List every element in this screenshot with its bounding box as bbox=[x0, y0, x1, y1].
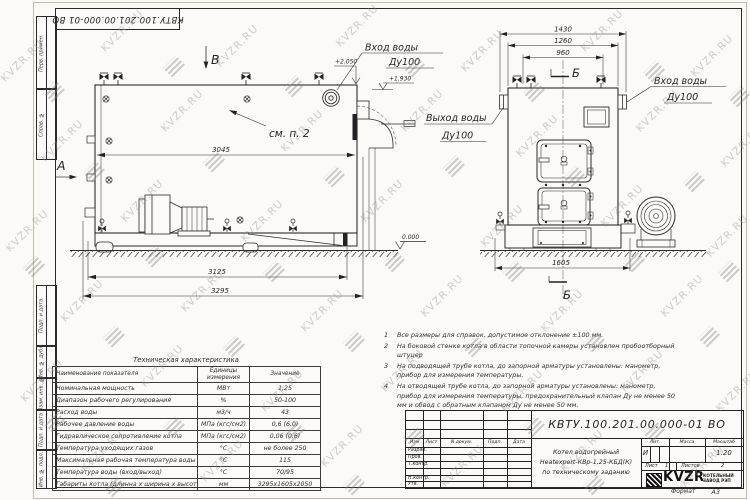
row-utv: Утв. bbox=[408, 482, 418, 487]
section-label-a: А bbox=[56, 158, 66, 173]
grid-line bbox=[406, 468, 531, 469]
dim-3295-value: 3295 bbox=[211, 287, 229, 295]
masshtab-header: Масштаб bbox=[705, 440, 743, 445]
format-word: Формат bbox=[671, 488, 695, 496]
param-unit: МВт bbox=[198, 383, 250, 395]
table-row: Диапазон рабочего регулирования%50-100 bbox=[53, 395, 321, 407]
note-item: 2На боковой стенке котла в области топоч… bbox=[384, 342, 676, 361]
sheets-label: Листов bbox=[681, 463, 700, 469]
callout-arrow bbox=[229, 110, 237, 115]
col-data: Дата bbox=[507, 440, 531, 445]
grid-line bbox=[406, 481, 531, 482]
sheet-label: Лист bbox=[645, 463, 658, 469]
fan-blower bbox=[637, 197, 675, 247]
dim-1260-value: 1260 bbox=[554, 37, 572, 45]
note-item: 4На отводящей трубе котла, до запорной а… bbox=[384, 382, 676, 411]
elevation-mark-inlet bbox=[372, 83, 414, 90]
elevation-mark-ground bbox=[396, 242, 427, 250]
description-line: по техническому заданию bbox=[542, 468, 630, 478]
description-line: Heatexpert-КВр-1,25-КБД(К) bbox=[540, 458, 632, 468]
notes-list: 1Все размеры для справок, допустимое отк… bbox=[384, 331, 676, 412]
table-row: Максимальная рабочая температура воды°С1… bbox=[53, 455, 321, 467]
blower-motor bbox=[139, 195, 214, 236]
lit-value: И bbox=[641, 449, 650, 457]
dim-3045-value: 3045 bbox=[212, 146, 230, 154]
param-name: Гидравлическое сопротивление котла bbox=[53, 431, 198, 443]
param-value: 70/95 bbox=[250, 467, 321, 479]
table-row: Габариты котла (длинна х ширина х высота… bbox=[53, 479, 321, 491]
scale-value: 1:20 bbox=[705, 449, 743, 457]
table-header-row: Наименование показателя Единицы измерени… bbox=[53, 367, 321, 383]
inlet-water-dn: Ду100 bbox=[388, 57, 420, 68]
param-value: 43 bbox=[250, 407, 321, 419]
param-unit: МПа (кгс/см2) bbox=[198, 419, 250, 431]
company-line: ЗАВОД РЭП bbox=[703, 478, 734, 484]
param-name: Максимальная рабочая температура воды bbox=[53, 455, 198, 467]
note-text: На боковой стенке котла в области топочн… bbox=[397, 342, 676, 361]
col-list: Лист bbox=[423, 440, 440, 445]
param-name: Температура воды (вход/выход) bbox=[53, 467, 198, 479]
flue-elbow bbox=[353, 101, 416, 250]
title-block: КВТУ.100.201.00.000-01 ВО Изм Лист N док… bbox=[405, 410, 744, 489]
note-number: 2 bbox=[384, 342, 397, 361]
dim-3125-value: 3125 bbox=[208, 268, 226, 276]
grid-line bbox=[676, 462, 677, 470]
note-item: 1Все размеры для справок, допустимое отк… bbox=[384, 331, 676, 341]
tech-table-title: Техническая характеристика bbox=[52, 356, 320, 364]
param-unit: °С bbox=[198, 455, 250, 467]
view-label-v: В bbox=[211, 52, 220, 67]
section-label-b-top: Б bbox=[572, 66, 580, 80]
kvzr-logo-icon bbox=[646, 473, 662, 487]
dim-1430-value: 1430 bbox=[554, 26, 572, 34]
note-number: 1 bbox=[384, 331, 397, 341]
note-number: 4 bbox=[384, 382, 397, 411]
table-row: Расход водым3/ч43 bbox=[53, 407, 321, 419]
param-value: 0,06 (0,6) bbox=[250, 431, 321, 443]
note-text: На подводящей трубе котла, до запорной а… bbox=[397, 362, 676, 381]
side-pipe-stubs bbox=[85, 136, 95, 217]
doc-number: КВТУ.100.201.00.000-01 ВО bbox=[531, 411, 743, 438]
tech-characteristics: Техническая характеристика Наименование … bbox=[52, 356, 320, 491]
note-item: 3На подводящей трубе котла, до запорной … bbox=[384, 362, 676, 381]
sheet-value: 1 bbox=[665, 463, 668, 469]
param-unit: °С bbox=[198, 467, 250, 479]
elevation-ground-value: 0.000 bbox=[402, 234, 419, 241]
grid-line bbox=[440, 411, 441, 488]
kvzr-logo-text: KVZR bbox=[663, 470, 705, 485]
param-value: не более 250 bbox=[250, 443, 321, 455]
param-value: 3295х1605х2050 bbox=[250, 479, 321, 491]
company-name: КОТЕЛЬНЫЙ ЗАВОД РЭП bbox=[703, 473, 734, 484]
param-unit: МПа (кгс/см2) bbox=[198, 431, 250, 443]
table-row: Номинальная мощностьМВт1,25 bbox=[53, 383, 321, 395]
drawing-description: Котел водогрейный Heatexpert-КВр-1,25-КБ… bbox=[531, 438, 641, 488]
param-unit: м3/ч bbox=[198, 407, 250, 419]
grid-line bbox=[641, 446, 743, 447]
param-unit: мм bbox=[198, 479, 250, 491]
note-number: 3 bbox=[384, 362, 397, 381]
param-value: 0,6 (6,0) bbox=[250, 419, 321, 431]
param-name: Габариты котла (длинна х ширина х высота… bbox=[53, 479, 198, 491]
table-row: Гидравлическое сопротивление котлаМПа (к… bbox=[53, 431, 321, 443]
tech-table: Наименование показателя Единицы измерени… bbox=[52, 366, 321, 491]
outlet-water-label: Выход воды bbox=[426, 113, 487, 124]
inlet-water-dn-front: Ду100 bbox=[666, 92, 698, 103]
col-izm: Изм bbox=[406, 440, 423, 445]
table-row: Температура воды (вход/выход)°С70/95 bbox=[53, 467, 321, 479]
massa-header: Масса bbox=[669, 440, 705, 445]
inlet-water-label-front: Вход воды bbox=[654, 76, 708, 87]
door-bolts bbox=[545, 145, 592, 223]
table-row: Рабочее давление водыМПа (кгс/см2)0,6 (6… bbox=[53, 419, 321, 431]
grid-line bbox=[659, 446, 660, 462]
table-row: Температура уходящих газов°Сне более 250 bbox=[53, 443, 321, 455]
param-name: Рабочее давление воды bbox=[53, 419, 198, 431]
grid-line bbox=[406, 420, 531, 421]
inlet-flange-icon bbox=[323, 90, 340, 107]
note-text: Все размеры для справок, допустимое откл… bbox=[397, 331, 676, 341]
drawing-sheet: Перв. примен. Справ. № Подп. и дата Инв.… bbox=[0, 0, 750, 500]
format-value: А3 bbox=[711, 488, 720, 496]
param-unit: °С bbox=[198, 443, 250, 455]
grid-line bbox=[406, 429, 531, 430]
col-header: Наименование показателя bbox=[53, 367, 198, 383]
param-unit: % bbox=[198, 395, 250, 407]
param-name: Номинальная мощность bbox=[53, 383, 198, 395]
section-label-b-bottom: Б bbox=[563, 288, 571, 302]
row-tkontr: Т.контр. bbox=[408, 462, 429, 467]
right-view: 1430 1260 960 1605 Б bbox=[424, 26, 726, 303]
dim-960-value: 960 bbox=[556, 49, 570, 57]
grid-line bbox=[507, 411, 508, 488]
roof-valve-icons bbox=[100, 73, 324, 85]
grid-line bbox=[406, 454, 531, 455]
front-doors bbox=[537, 107, 609, 225]
sheets-value: 2 bbox=[721, 463, 724, 469]
note-text: На отводящей трубе котла, до запорной ар… bbox=[397, 382, 676, 411]
roof-valve-icons-front bbox=[513, 76, 606, 88]
col-header: Единицы измерения bbox=[198, 367, 250, 383]
grid-line bbox=[650, 446, 651, 462]
row-razrab: Разраб. bbox=[408, 448, 427, 453]
param-value: 1,25 bbox=[250, 383, 321, 395]
param-name: Расход воды bbox=[53, 407, 198, 419]
skid-base bbox=[95, 233, 357, 252]
callout-see-p2: см. п. 2 bbox=[269, 128, 310, 140]
elevation-inlet-value: +1.930 bbox=[389, 76, 411, 83]
param-value: 50-100 bbox=[250, 395, 321, 407]
inlet-water-label: Вход воды bbox=[365, 43, 419, 54]
param-value: 115 bbox=[250, 455, 321, 467]
dim-3295 bbox=[83, 157, 363, 299]
lit-header: Лит. bbox=[641, 440, 669, 445]
description-line: Котел водогрейный bbox=[553, 448, 619, 458]
grid-line bbox=[483, 411, 484, 488]
param-name: Температура уходящих газов bbox=[53, 443, 198, 455]
outlet-water-dn: Ду100 bbox=[441, 131, 473, 142]
row-prov: Пров. bbox=[408, 455, 422, 460]
col-ndokum: N докум. bbox=[440, 440, 483, 445]
elevation-top-value: +2.050 bbox=[335, 59, 357, 66]
left-view: 0.000 3045 3125 3295 bbox=[56, 43, 443, 300]
col-header: Значение bbox=[250, 367, 321, 383]
col-podp: Подп. bbox=[483, 440, 507, 445]
dim-1605-value: 1605 bbox=[552, 259, 570, 267]
row-nkontr: Н.контр. bbox=[408, 476, 429, 481]
param-name: Диапазон рабочего регулирования bbox=[53, 395, 198, 407]
format-label: Формат А3 bbox=[648, 488, 743, 496]
